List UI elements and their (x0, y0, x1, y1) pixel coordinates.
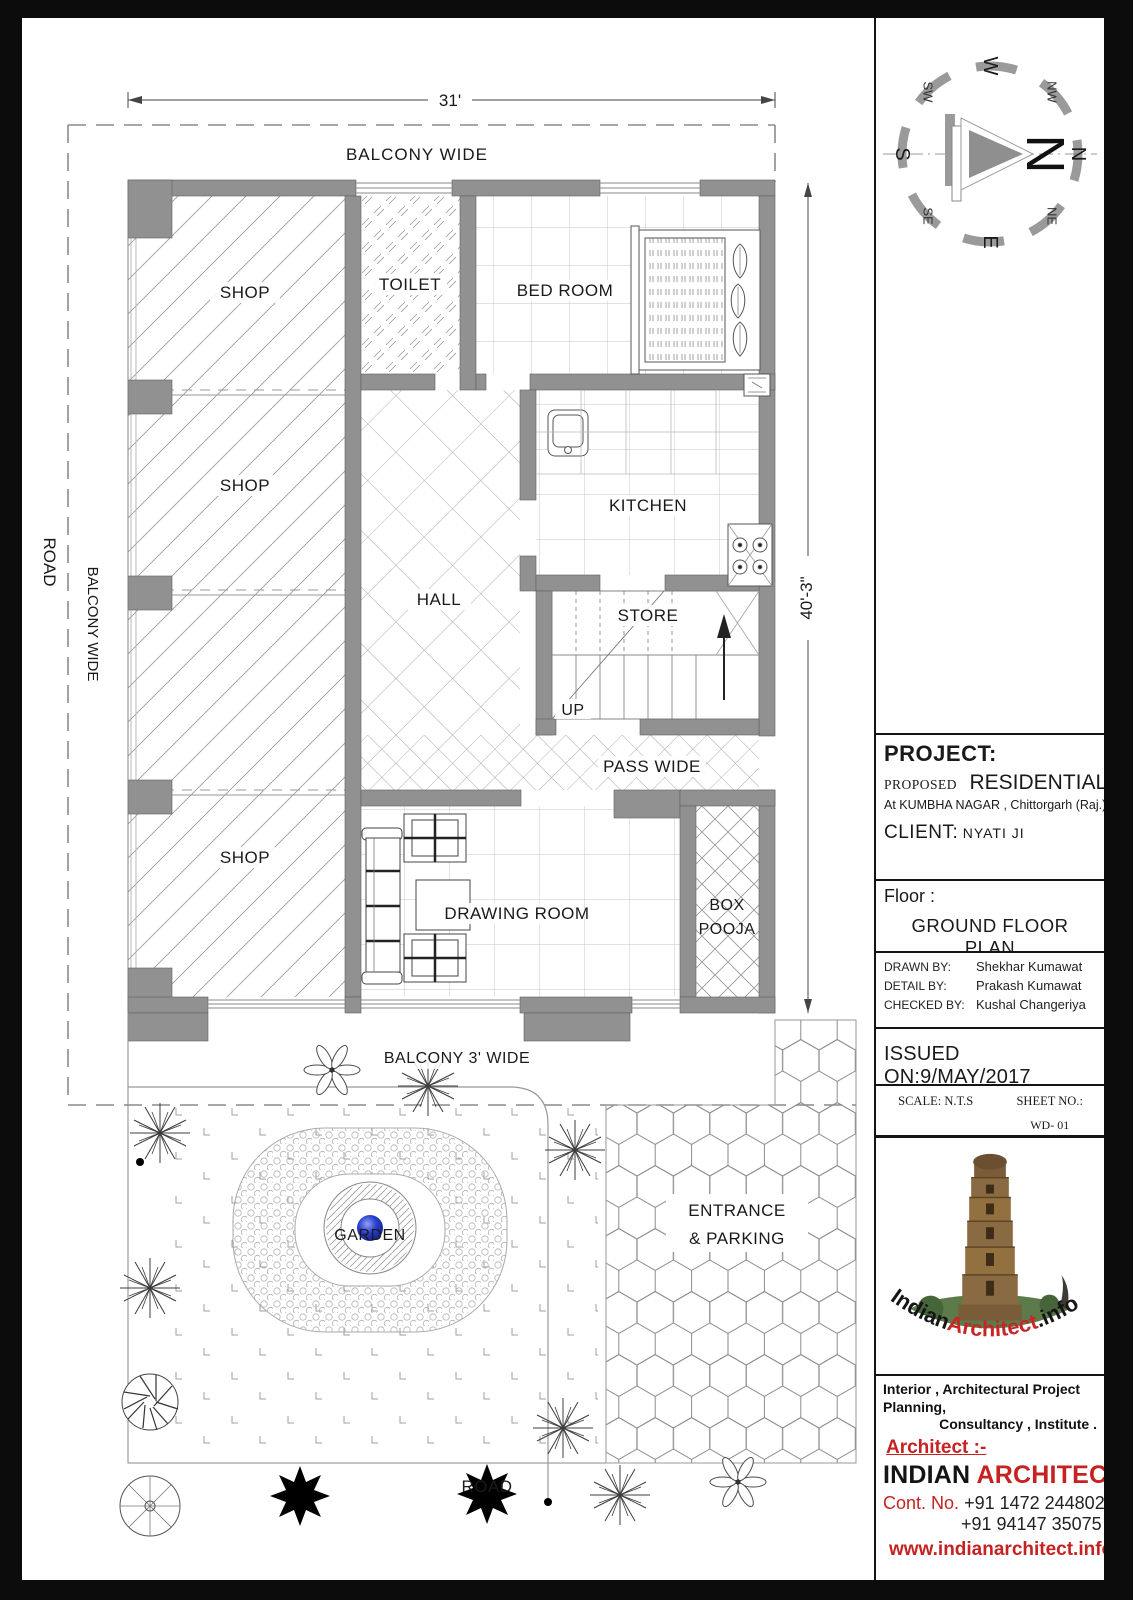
compass-e: E (979, 235, 1001, 248)
balcony-top-label: BALCONY WIDE (346, 145, 488, 164)
compass-ne: NE (1045, 207, 1060, 225)
sheet-cell: SHEET NO.: WD- 01 (995, 1086, 1104, 1135)
balcony-bottom-label: BALCONY 3' WIDE (384, 1050, 530, 1067)
stove (728, 524, 772, 586)
up-label: UP (561, 702, 584, 719)
contact-label: Cont. No. (883, 1493, 959, 1513)
kitchen-label: KITCHEN (609, 496, 687, 515)
road-bottom-label: ROAD (461, 1477, 512, 1496)
issued-on: ISSUED ON:9/MAY/2017 (884, 1043, 1096, 1086)
drawing-room-label: DRAWING ROOM (444, 904, 589, 923)
brand-logo: IndianArchitect.info (876, 1138, 1104, 1374)
balcony-left-label: BALCONY WIDE (84, 567, 101, 682)
title-block: N W N S E NW NE SE SW PROJECT: PROPOSED (874, 18, 1104, 1580)
entrance-label-2: & PARKING (689, 1229, 785, 1248)
dim-height-label: 40'-3" (797, 576, 816, 619)
logo-box: IndianArchitect.info (876, 1138, 1104, 1376)
compass-sw: SW (921, 82, 936, 104)
compass-s: S (891, 147, 913, 160)
floor-label: Floor : (884, 886, 1096, 907)
phone2-value: +91 94147 35075 (961, 1514, 1102, 1535)
website-url[interactable]: www.indianarchitect.info (889, 1539, 1104, 1559)
sheet-no-label: SHEET NO.: (995, 1094, 1104, 1109)
issued-section: ISSUED ON:9/MAY/2017 (876, 1029, 1104, 1086)
checked-by-value: Kushal Changeriya (976, 997, 1086, 1012)
phone-line-2: +91 94147 35075 ☎ (961, 1514, 1097, 1535)
project-location: At KUMBHA NAGAR , Chittorgarh (Raj.) (884, 798, 1096, 812)
shop1-label: SHOP (220, 283, 270, 302)
drawn-by-value: Shekhar Kumawat (976, 959, 1082, 974)
hall-label: HALL (417, 590, 462, 609)
credits-section: DRAWN BY: Shekhar Kumawat DETAIL BY: Pra… (876, 953, 1104, 1029)
services-line1: Interior , Architectural Project Plannin… (883, 1381, 1097, 1416)
services-text: Interior , Architectural Project Plannin… (883, 1381, 1097, 1434)
store-label: STORE (618, 606, 679, 625)
dimension-height: 40'-3" (796, 183, 820, 1013)
victory-tower (958, 1154, 1021, 1321)
compass-se: SE (921, 207, 936, 225)
compass-w: W (979, 57, 1001, 76)
project-label: PROJECT: (884, 741, 1096, 767)
detail-by-value: Prakash Kumawat (976, 978, 1082, 993)
pooja-label-2: POOJA (699, 921, 756, 938)
detail-by-row: DETAIL BY: Prakash Kumawat (884, 978, 1096, 993)
scale-value: SCALE: N.T.S (876, 1086, 995, 1135)
scale-section: SCALE: N.T.S SHEET NO.: WD- 01 (876, 1086, 1104, 1138)
shop3-label: SHOP (220, 848, 270, 867)
shop2-label: SHOP (220, 476, 270, 495)
project-type: RESIDENTIAL (969, 771, 1104, 794)
website-row[interactable]: www.indianarchitect.info (883, 1539, 1097, 1559)
garden-site (120, 1013, 856, 1536)
services-line2: Consultancy , Institute . (883, 1416, 1097, 1434)
compass-rose: N W N S E NW NE SE SW (877, 26, 1103, 276)
sheet-no-value: WD- 01 (995, 1118, 1104, 1133)
drawn-by-row: DRAWN BY: Shekhar Kumawat (884, 959, 1096, 974)
architect-label: Architect :- (886, 1437, 1097, 1459)
brand-part2: ARCHITECT (977, 1461, 1104, 1489)
checked-by-row: CHECKED BY: Kushal Changeriya (884, 997, 1096, 1012)
phone-line-1: Cont. No. +91 1472 244802 (o) (883, 1493, 1097, 1514)
brand-name: INDIAN ARCHITECT .INFO (883, 1461, 1097, 1490)
checked-by-label: CHECKED BY: (884, 998, 976, 1012)
pooja-label-1: BOX (709, 897, 744, 914)
client-label: CLIENT: (884, 822, 958, 843)
compass-nw: NW (1045, 81, 1060, 103)
road-left-label: ROAD (40, 537, 59, 586)
proposed-label: PROPOSED (884, 777, 957, 792)
phone1-value: +91 1472 244802 (964, 1493, 1104, 1513)
sofa-set (362, 814, 470, 984)
dim-width-label: 31' (439, 91, 461, 110)
garden-label: GARDEN (334, 1227, 405, 1244)
brand-part1: INDIAN (883, 1461, 970, 1489)
bed (631, 226, 770, 396)
drawn-by-label: DRAWN BY: (884, 960, 976, 974)
client-name: NYATI JI (963, 825, 1025, 841)
pass-label: PASS WIDE (603, 757, 701, 776)
bedroom-label: BED ROOM (517, 281, 614, 300)
floor-section: Floor : GROUND FLOOR PLAN (876, 881, 1104, 953)
entrance-label-1: ENTRANCE (688, 1201, 786, 1220)
compass-needle-letter: N (1015, 135, 1075, 174)
detail-by-label: DETAIL BY: (884, 979, 976, 993)
dimension-width: 31' (128, 88, 775, 110)
contact-section: Interior , Architectural Project Plannin… (876, 1376, 1104, 1558)
drawing-sheet-page: 31' 40'-3" ROAD BALCONY WIDE BALCONY WID… (0, 0, 1133, 1600)
compass-box: N W N S E NW NE SE SW (876, 18, 1104, 735)
project-section: PROJECT: PROPOSED RESIDENTIAL At KUMBHA … (876, 735, 1104, 881)
compass-n: N (1067, 147, 1089, 161)
floor-value: GROUND FLOOR PLAN (884, 915, 1096, 953)
toilet-label: TOILET (379, 275, 441, 294)
